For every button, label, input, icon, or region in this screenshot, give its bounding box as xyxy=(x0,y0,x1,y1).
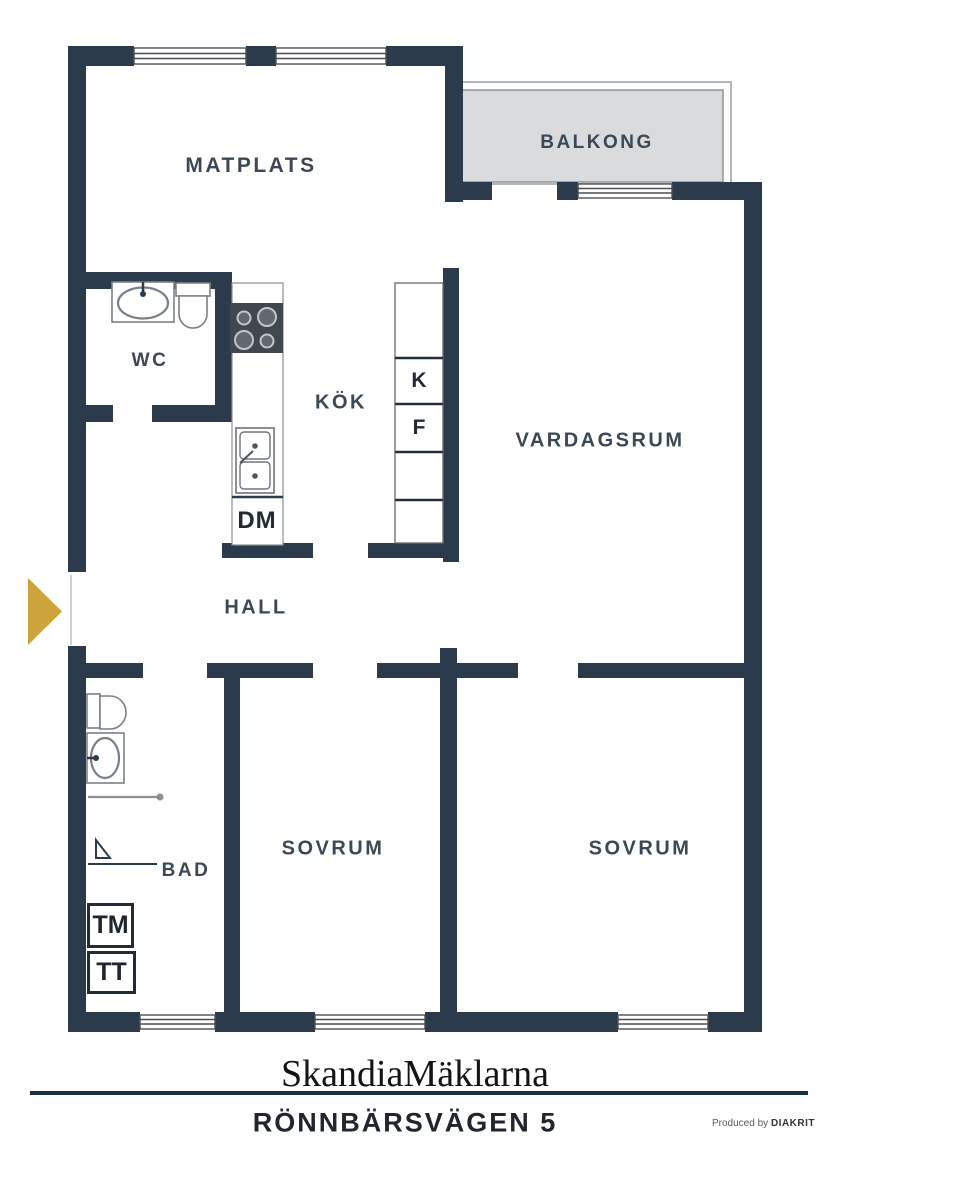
brand-logo: SkandiaMäklarna xyxy=(281,1052,549,1096)
floor-plan-canvas: MATPLATS BALKONG WC KÖK VARDAGSRUM HALL … xyxy=(0,0,960,1178)
room-label-kok: KÖK xyxy=(315,392,367,415)
window-top-right xyxy=(276,48,386,64)
produced-by-credit: Produced by DIAKRIT xyxy=(712,1118,815,1129)
entrance-arrow-icon xyxy=(28,578,62,645)
bath-toilet-icon xyxy=(87,694,126,729)
window-balcony-door xyxy=(578,184,672,198)
room-label-wc: WC xyxy=(132,350,169,372)
producer-name: DIAKRIT xyxy=(771,1118,815,1129)
floor-plan-drawing xyxy=(0,0,960,1178)
bath-sink-icon xyxy=(87,733,124,783)
window-bedroom-left xyxy=(315,1015,425,1029)
stove-icon xyxy=(230,303,283,353)
room-label-matplats: MATPLATS xyxy=(185,154,316,178)
footer-divider xyxy=(30,1091,808,1095)
freezer-label: F xyxy=(413,416,426,440)
fridge-label: K xyxy=(411,369,426,393)
room-label-sovrum-2: SOVRUM xyxy=(589,838,692,861)
washing-machine-box: TM xyxy=(87,903,134,948)
room-label-hall: HALL xyxy=(224,597,287,620)
fridge-freezer-cabinet xyxy=(395,283,443,543)
towel-rail-icon xyxy=(88,794,164,801)
room-label-bad: BAD xyxy=(162,860,211,882)
kitchen-sink-icon xyxy=(236,428,274,493)
dishwasher-label: DM xyxy=(237,507,276,535)
room-label-vardagsrum: VARDAGSRUM xyxy=(515,430,684,453)
window-bath xyxy=(140,1015,215,1029)
wc-toilet-icon xyxy=(176,283,210,328)
shower-corner-icon xyxy=(96,840,110,858)
window-top-left xyxy=(134,48,246,64)
tumble-dryer-box: TT xyxy=(87,951,136,994)
window-bedroom-right xyxy=(618,1015,708,1029)
room-label-balkong: BALKONG xyxy=(540,132,654,154)
wc-sink-icon xyxy=(112,282,174,322)
room-label-sovrum-1: SOVRUM xyxy=(282,838,385,861)
produced-by-prefix: Produced by xyxy=(712,1118,768,1129)
address-title: RÖNNBÄRSVÄGEN 5 xyxy=(253,1108,558,1139)
